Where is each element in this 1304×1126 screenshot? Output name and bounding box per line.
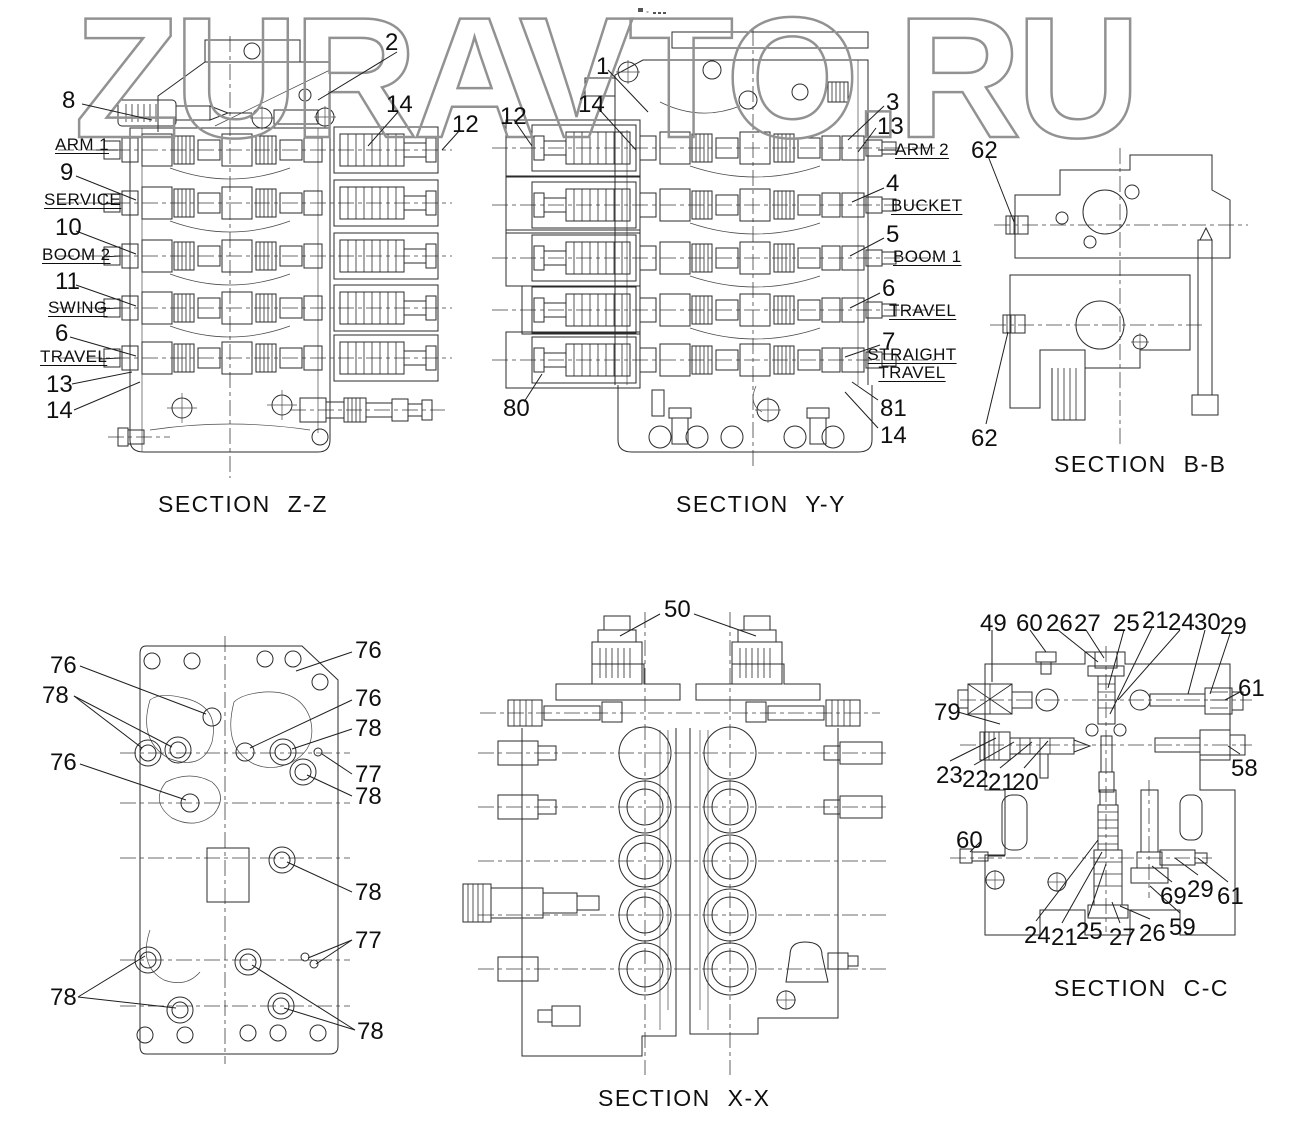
port-label-travel: TRAVEL xyxy=(40,348,107,366)
callout: 76 xyxy=(355,638,382,663)
callout: 11 xyxy=(55,269,80,294)
port-label-boom2: BOOM 2 xyxy=(42,246,111,264)
caption-section-cc: SECTION C-C xyxy=(1054,976,1229,1000)
callout: 13 xyxy=(877,114,904,139)
callout: 25 xyxy=(1076,919,1103,944)
callout: 26 xyxy=(1046,611,1073,636)
callout: 22 xyxy=(962,767,989,792)
callout: 1 xyxy=(596,54,609,79)
callout: 24 xyxy=(1168,610,1195,635)
callout: 29 xyxy=(1187,877,1214,902)
callout: 50 xyxy=(664,597,691,622)
callout: 78 xyxy=(355,880,382,905)
callout: 80 xyxy=(503,396,530,421)
callout: 61 xyxy=(1238,676,1265,701)
callout: 13 xyxy=(46,372,73,397)
callout: 76 xyxy=(50,653,77,678)
callout: 78 xyxy=(355,716,382,741)
callout: 27 xyxy=(1074,611,1101,636)
caption-section-xx: SECTION X-X xyxy=(598,1086,770,1110)
callout: 59 xyxy=(1169,915,1196,940)
callout: 4 xyxy=(886,171,899,196)
callout: 12 xyxy=(500,104,527,129)
callout: 21 xyxy=(1051,925,1078,950)
callout: 79 xyxy=(934,700,961,725)
callout: 49 xyxy=(980,611,1007,636)
callout: 14 xyxy=(46,398,73,423)
callout: 20 xyxy=(1012,770,1039,795)
callout: 8 xyxy=(62,88,75,113)
callout: 27 xyxy=(1109,925,1136,950)
callout: 21 xyxy=(1142,608,1169,633)
port-label-boom1: BOOM 1 xyxy=(893,248,962,266)
port-label-bucket: BUCKET xyxy=(891,197,962,215)
caption-section-zz: SECTION Z-Z xyxy=(158,492,328,516)
port-label-straight-travel: STRAIGHT TRAVEL xyxy=(866,346,958,382)
callout: 76 xyxy=(355,686,382,711)
callout: 9 xyxy=(60,160,73,185)
callout: 60 xyxy=(956,828,983,853)
callout: 81 xyxy=(880,396,907,421)
callout: 24 xyxy=(1024,923,1051,948)
callout: 58 xyxy=(1231,756,1258,781)
port-label-swing: SWING xyxy=(48,299,108,317)
port-label-arm1: ARM 1 xyxy=(55,136,109,154)
port-label-travel2: TRAVEL xyxy=(889,302,956,320)
callout: 12 xyxy=(452,112,479,137)
callout: 61 xyxy=(1217,884,1244,909)
port-label-arm2: ARM 2 xyxy=(895,141,949,159)
callout: 62 xyxy=(971,426,998,451)
callout: 77 xyxy=(355,928,382,953)
callout: 60 xyxy=(1016,611,1043,636)
callout: 3 xyxy=(886,90,899,115)
callout: 78 xyxy=(42,683,69,708)
callout: 26 xyxy=(1139,921,1166,946)
callout: 14 xyxy=(578,92,605,117)
callout: 10 xyxy=(55,215,82,240)
callout: 29 xyxy=(1220,614,1247,639)
caption-section-yy: SECTION Y-Y xyxy=(676,492,846,516)
callout: 2 xyxy=(385,30,398,55)
callout: 78 xyxy=(355,784,382,809)
callout: 5 xyxy=(886,222,899,247)
callout: 76 xyxy=(50,750,77,775)
print-artifact-mark xyxy=(638,8,643,12)
callout: 23 xyxy=(936,763,963,788)
callout: 62 xyxy=(971,138,998,163)
caption-section-bb: SECTION B-B xyxy=(1054,452,1226,476)
leader-lines xyxy=(0,0,1304,1126)
callout: 14 xyxy=(880,423,907,448)
callout: 69 xyxy=(1160,884,1187,909)
callout: 6 xyxy=(882,276,895,301)
callout: 30 xyxy=(1194,610,1221,635)
callout: 6 xyxy=(55,321,68,346)
parts-diagram-page: ZURAVTO.RU 2 8 14 12 ARM 1 9 SERVICE 10 … xyxy=(0,0,1304,1126)
callout: 78 xyxy=(357,1019,384,1044)
port-label-service: SERVICE xyxy=(44,191,121,209)
callout: 14 xyxy=(386,92,413,117)
callout: 21 xyxy=(988,770,1015,795)
callout: 25 xyxy=(1113,611,1140,636)
callout: 78 xyxy=(50,985,77,1010)
